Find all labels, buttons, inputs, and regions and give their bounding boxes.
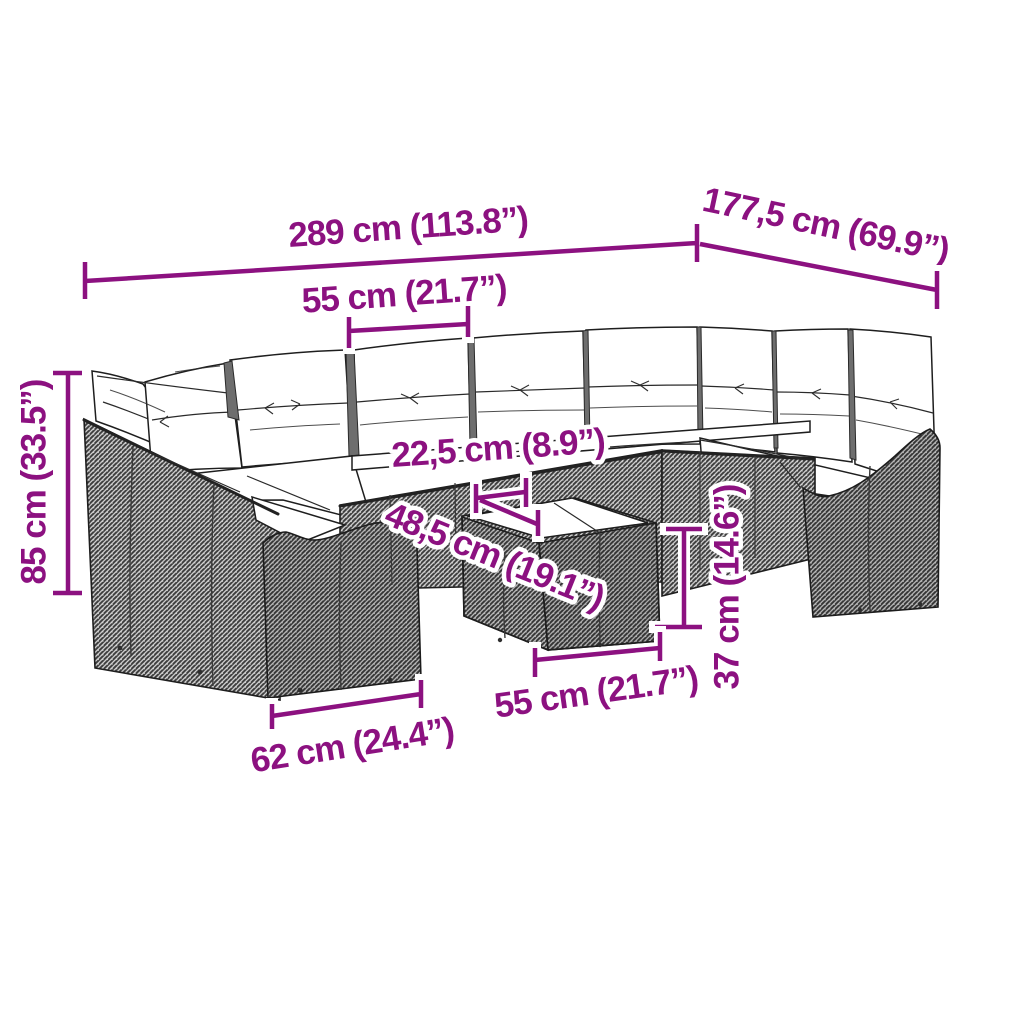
svg-text:37 cm (14.6”): 37 cm (14.6”) <box>708 485 747 690</box>
svg-text:85 cm (33.5”): 85 cm (33.5”) <box>15 380 54 585</box>
